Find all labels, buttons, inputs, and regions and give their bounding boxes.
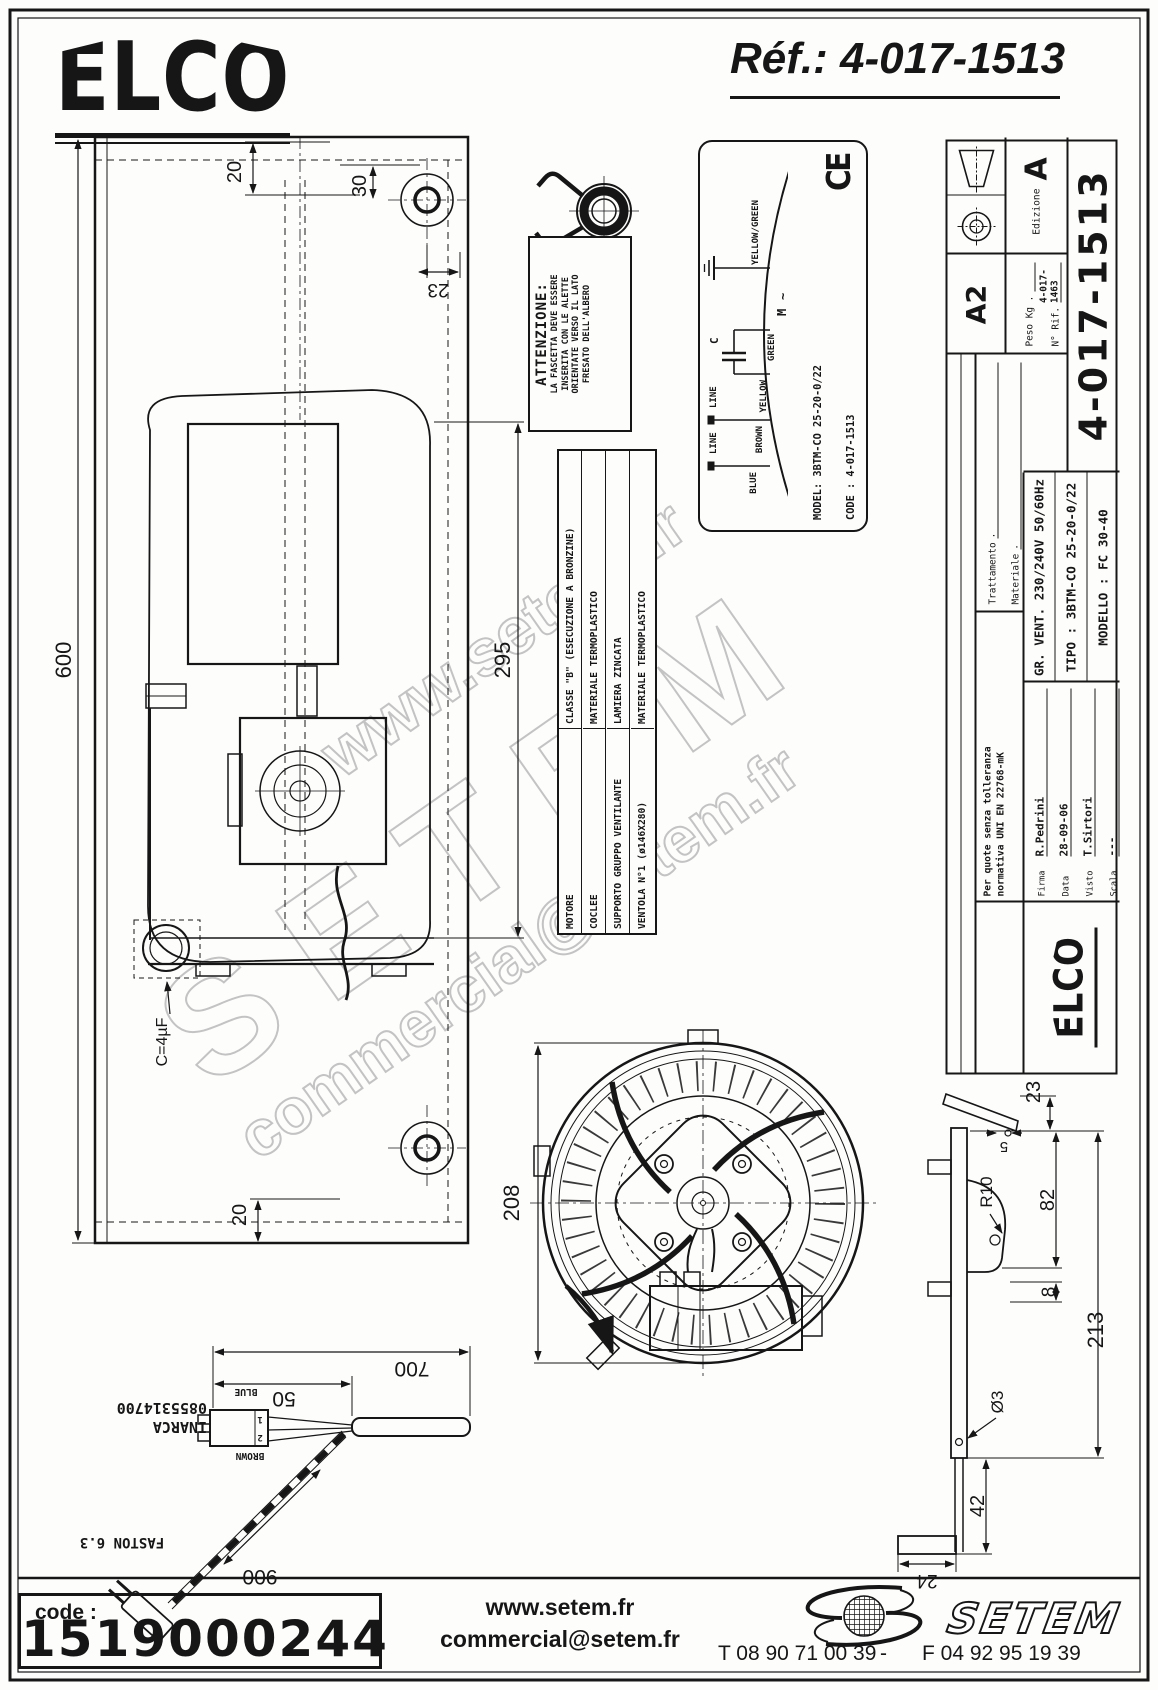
dim-208: 208 xyxy=(500,1178,524,1228)
materials-row-value: MATERIALE TERMOPLASTICO xyxy=(631,451,654,728)
setem-logo-icon xyxy=(782,1582,942,1648)
tolerance-line1: Per quote senza tolleranza xyxy=(982,613,995,897)
dim-20-bottom: 20 xyxy=(229,1197,251,1233)
tolerance-line2: normativa UNI EN 22768-mK xyxy=(995,613,1008,897)
wiring-diagram: LINE LINE BLUE BROWN YELLOW GREEN YELLOW… xyxy=(700,140,788,530)
materials-row-value: CLASSE "B" (ESECUZIONE A BRONZINE) xyxy=(559,451,582,728)
format-cell: A2 xyxy=(948,255,1006,355)
ac-symbol: ~ xyxy=(776,293,788,300)
elco-logo: ELCO xyxy=(55,26,295,138)
line-label-2: LINE xyxy=(709,386,719,408)
wire-brown-label: BROWN xyxy=(226,1450,274,1462)
firma-label: Firma xyxy=(1038,857,1048,897)
dim-213: 213 xyxy=(1084,1305,1108,1355)
wire-label-yellow-green: YELLOW/GREEN xyxy=(751,200,761,265)
materials-row-label: COCLEE xyxy=(583,728,606,933)
inarca-line1: INARCA xyxy=(89,1417,207,1436)
wire-label-yellow: YELLOW xyxy=(759,379,769,412)
edizione-value: A xyxy=(1019,157,1054,180)
datasheet-page: www.setem.fr SETEM commercial@setem.fr xyxy=(0,0,1158,1690)
materiale-value: . xyxy=(1010,363,1022,550)
signature-fields: Firma R.Pedrini Data 28-09-06 Visto T.Si… xyxy=(1024,683,1120,903)
elco-logo-underline xyxy=(55,133,290,138)
footer-phone: T 08 90 71 00 39 xyxy=(718,1642,876,1666)
attention-note: ATTENZIONE: LA FASCETTA DEVE ESSERE INSE… xyxy=(528,236,632,432)
title-block-logo: ELCO xyxy=(1024,903,1120,1073)
modello-line: MODELLO : FC 30-40 xyxy=(1088,473,1119,683)
reference-number: Réf.: 4-017-1513 xyxy=(730,34,1060,99)
capacitor-callout: C=4µF xyxy=(153,1009,173,1075)
motor-symbol-label: M xyxy=(775,309,788,316)
pin-1-label: 1 xyxy=(255,1414,265,1424)
dim-23-top: 23 xyxy=(421,279,455,299)
line-label-1: LINE xyxy=(709,432,719,454)
wire-blue-label: BLUE xyxy=(226,1386,266,1398)
dim-8: 8 xyxy=(1040,1282,1060,1302)
dim-diameter-3: Ø3 xyxy=(988,1384,1008,1420)
trattamento-label: Trattamento xyxy=(988,542,999,604)
scala-label: Scala xyxy=(1110,857,1120,897)
attention-line3: ORIENTATE VERSO IL LATO xyxy=(571,238,582,430)
rif-value: 4-017-1463 xyxy=(1039,263,1062,303)
attention-line1: LA FASCETTA DEVE ESSERE xyxy=(550,238,561,430)
dim-20-top: 20 xyxy=(224,154,246,190)
wire-label-green: GREEN xyxy=(767,334,777,361)
footer-website: www.setem.fr xyxy=(410,1594,710,1621)
attention-title: ATTENZIONE: xyxy=(534,238,550,430)
treatment-material-fields: Trattamento . Materiale . xyxy=(976,355,1024,613)
product-identification: GR. VENT. 230/240V 50/60Hz TIPO : 3BTM-C… xyxy=(1024,473,1120,683)
footer-fax: F 04 92 95 19 39 xyxy=(922,1642,1081,1666)
data-value: 28-09-06 xyxy=(1058,689,1072,857)
capacitor-symbol-label: C xyxy=(708,337,721,344)
footer-separator: - xyxy=(880,1642,887,1666)
materials-row-label: VENTOLA N°1 (ø146X280) xyxy=(631,728,654,933)
projection-symbols xyxy=(948,138,1006,255)
scala-value: --- xyxy=(1106,689,1120,857)
spec-code: CODE : 4-017-1513 xyxy=(846,215,857,520)
setem-logo-text: SETEM xyxy=(944,1594,1126,1643)
data-label: Data xyxy=(1062,857,1072,897)
materials-table: MOTORE CLASSE "B" (ESECUZIONE A BRONZINE… xyxy=(557,449,657,935)
ce-mark: CE xyxy=(819,154,858,191)
inarca-line2: 0855314700 xyxy=(89,1398,207,1417)
peso-label: Peso Kg . xyxy=(1025,296,1036,347)
dim-5: 5 xyxy=(995,1138,1013,1156)
materials-row-label: MOTORE xyxy=(559,728,582,933)
edition-cell: Edizione A xyxy=(1006,138,1068,255)
elco-logo-underline-thin xyxy=(55,142,290,144)
motor-spec-label: LINE LINE BLUE BROWN YELLOW GREEN YELLOW… xyxy=(698,140,868,532)
dim-r10: R10 xyxy=(977,1171,997,1213)
dim-50: 50 xyxy=(265,1386,303,1410)
spec-model: MODEL: 3BTM-CO 25-20-0/22 xyxy=(813,215,824,520)
dim-30: 30 xyxy=(349,168,371,204)
pin-2-label: 2 xyxy=(255,1432,265,1442)
visto-value: T.Sirtori xyxy=(1082,689,1096,857)
code-box: code : 1519000244 xyxy=(18,1593,382,1669)
visto-label: Visto xyxy=(1086,857,1096,897)
dim-900: 900 xyxy=(236,1564,284,1588)
dim-23-side: 23 xyxy=(1023,1075,1045,1109)
rif-label: N° Rif. xyxy=(1051,307,1062,347)
tipo-line: TIPO : 3BTM-CO 25-20-0/22 xyxy=(1056,473,1088,683)
dim-42: 42 xyxy=(967,1489,989,1523)
firma-value: R.Pedrini xyxy=(1034,689,1048,857)
code-value: 1519000244 xyxy=(21,1610,379,1668)
weight-ref-cell: Peso Kg . N° Rif. 4-017-1463 xyxy=(1006,255,1068,355)
attention-line4: FRESATO DELL'ALBERO xyxy=(582,238,593,430)
tolerance-note: Per quote senza tolleranza normativa UNI… xyxy=(976,613,1024,903)
faston-label: FASTON 6.3 xyxy=(56,1532,188,1552)
materials-row-label: SUPPORTO GRUPPO VENTILANTE xyxy=(607,728,630,933)
dim-600: 600 xyxy=(52,633,76,687)
materials-row-value: LAMIERA ZINCATA xyxy=(607,451,630,728)
dim-295: 295 xyxy=(491,635,515,685)
dim-700: 700 xyxy=(386,1356,438,1380)
dim-82: 82 xyxy=(1037,1183,1059,1217)
title-block: Per quote senza tolleranza normativa UNI… xyxy=(946,140,1118,1075)
projection-target-icon xyxy=(955,203,999,249)
materiale-label: Materiale xyxy=(1011,554,1022,605)
wire-label-blue: BLUE xyxy=(749,472,759,494)
attention-line2: INSERITA CON LE ALETTE xyxy=(561,238,572,430)
materials-row-value: MATERIALE TERMOPLASTICO xyxy=(583,451,606,728)
projection-cone-icon xyxy=(955,143,999,193)
drawing-number: 4-017-1513 xyxy=(1068,138,1120,473)
wire-label-brown: BROWN xyxy=(755,426,765,453)
spec-text: MODEL: 3BTM-CO 25-20-0/22 CODE : 4-017-1… xyxy=(790,215,868,520)
inarca-label: INARCA 0855314700 xyxy=(89,1396,207,1436)
trattamento-value: . xyxy=(987,363,999,539)
text-layer: ELCO Réf.: 4-017-1513 600 20 30 23 295 C… xyxy=(0,0,1158,1690)
product-line: GR. VENT. 230/240V 50/60Hz xyxy=(1024,473,1056,683)
edizione-label: Edizione xyxy=(1031,189,1042,235)
footer-email: commercial@setem.fr xyxy=(395,1626,725,1653)
